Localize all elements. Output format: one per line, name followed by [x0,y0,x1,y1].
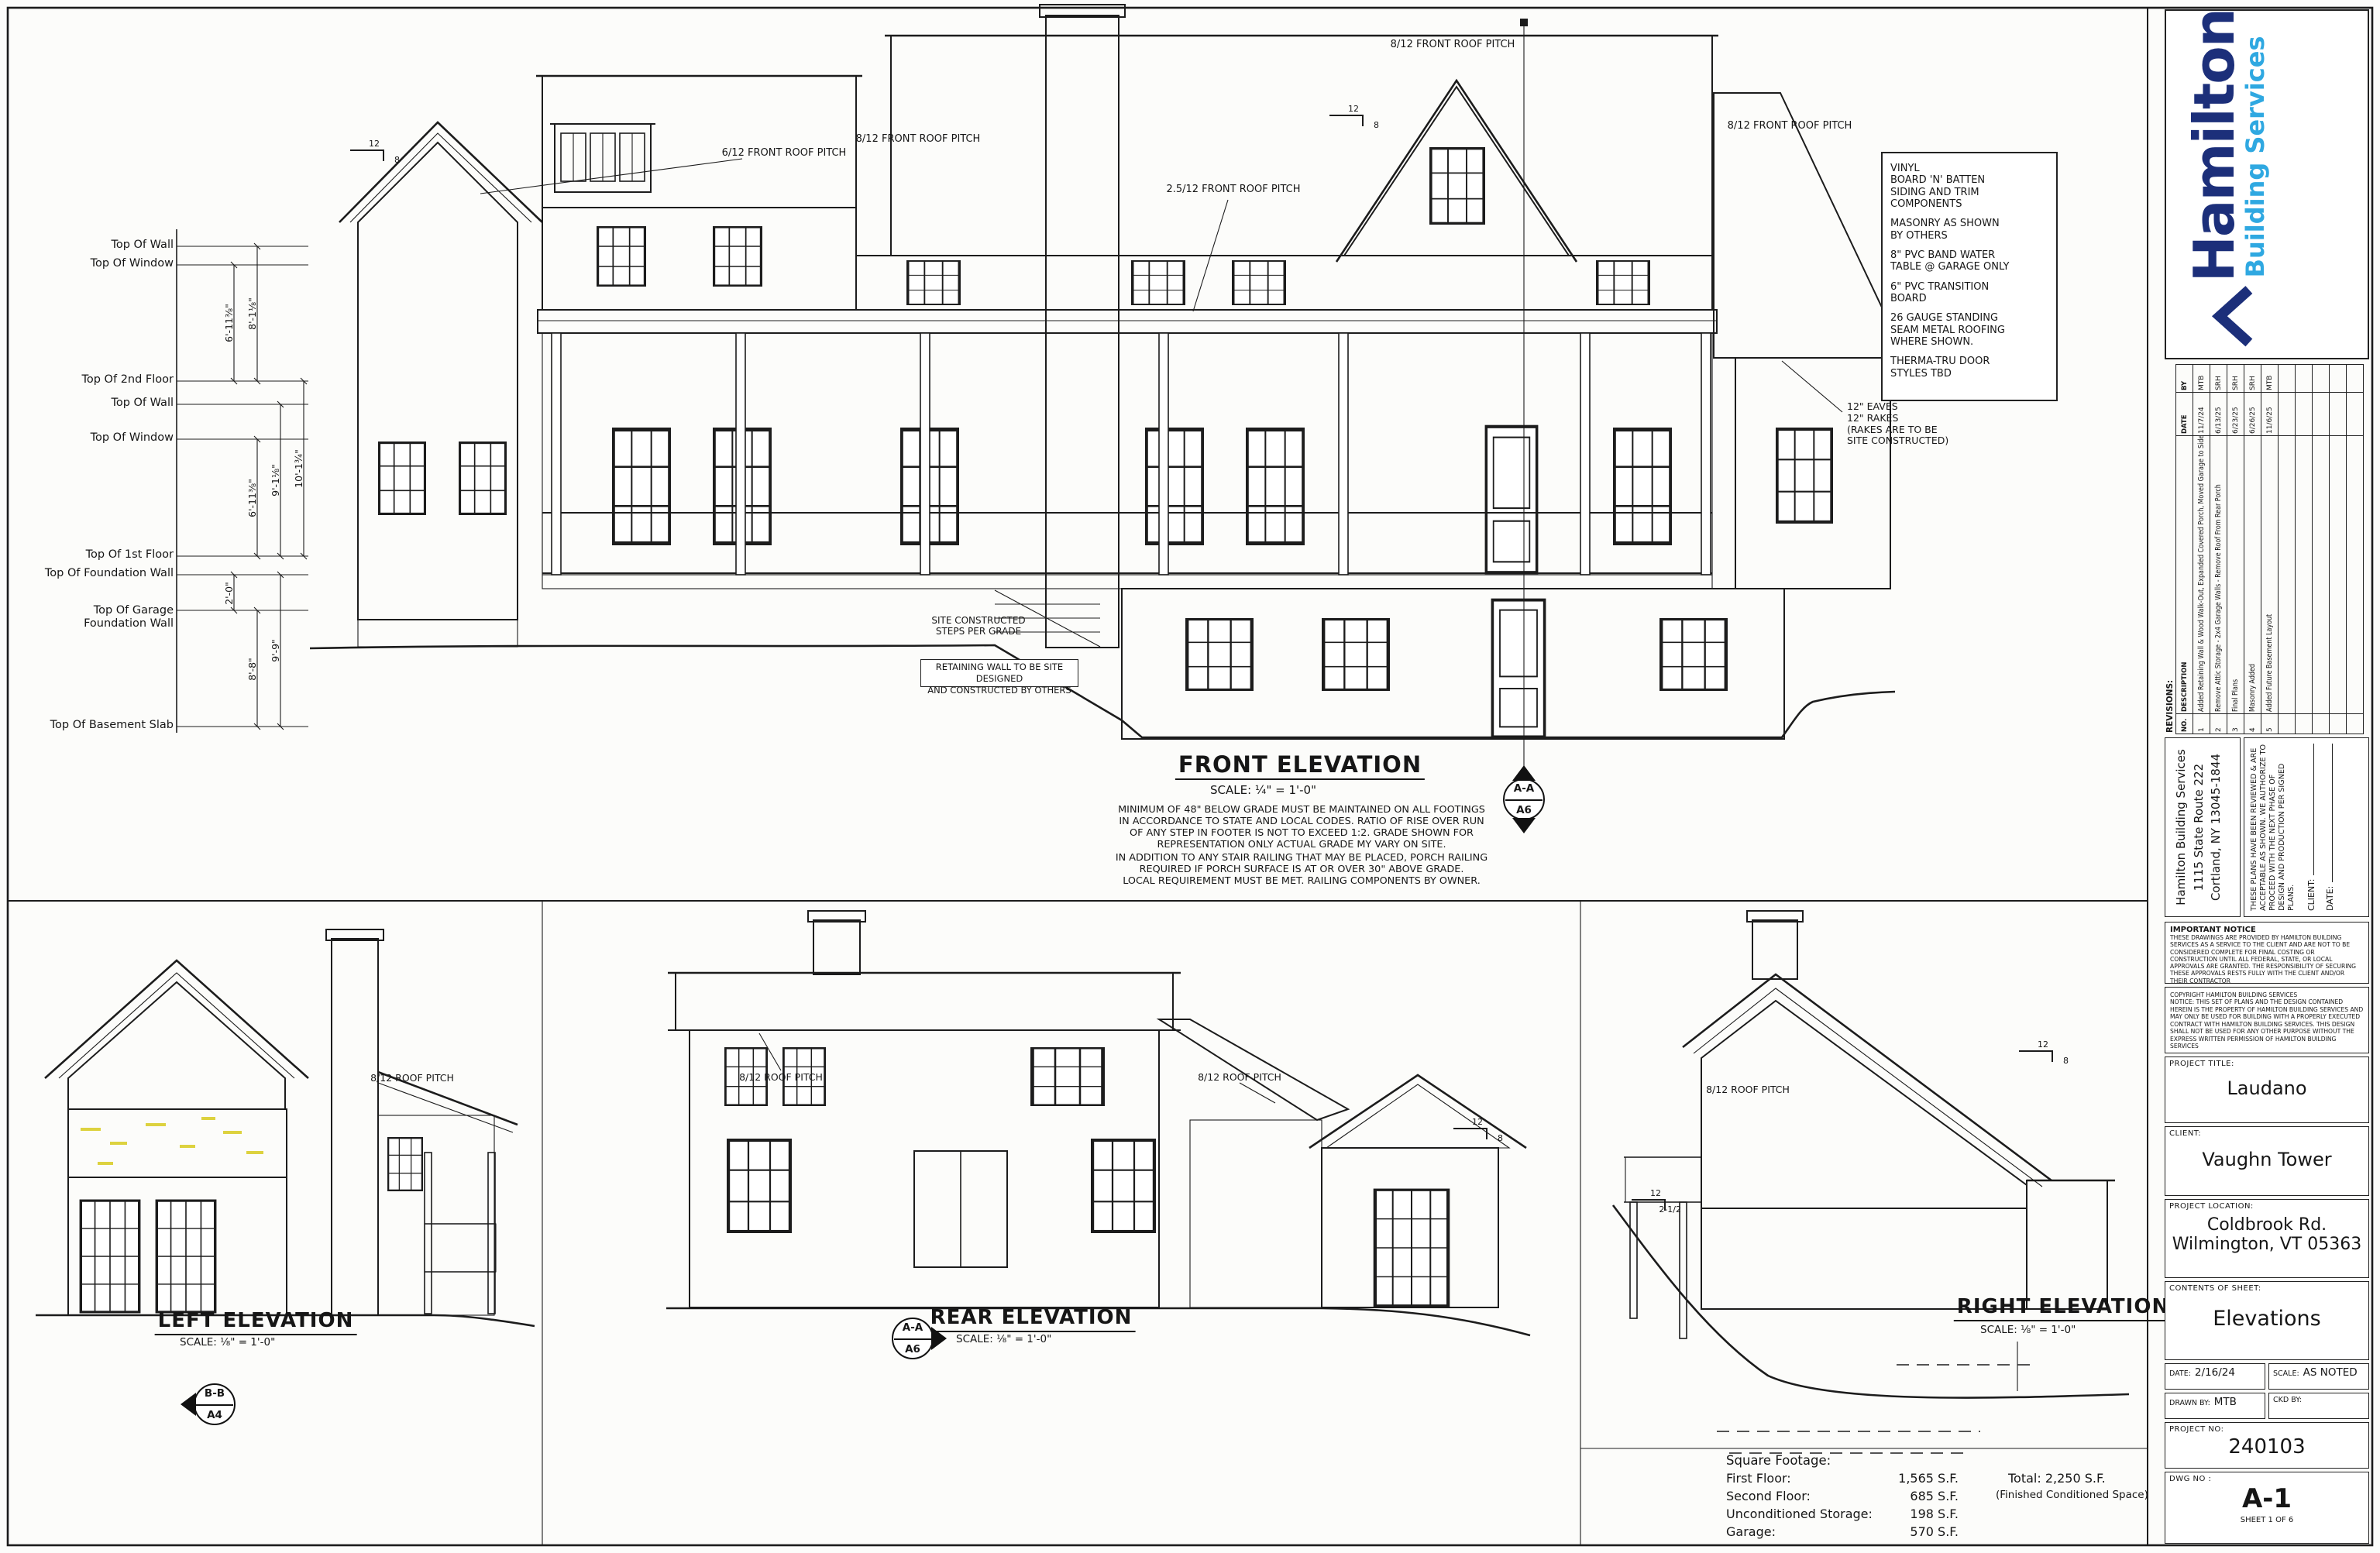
front-footing-note: MINIMUM OF 48" BELOW GRADE MUST BE MAINT… [1118,804,1485,850]
project-no-box: PROJECT NO: 240103 [2165,1422,2369,1469]
rev-date: 6/13/25 [2210,393,2227,436]
sqft-total: Total: 2,250 S.F. [2008,1472,2106,1486]
datum-top-of-window-lower: Top Of Window [0,431,174,445]
dim-wall-to-1st-floor: 9'-1⅛" [270,464,281,496]
sqft-row-label: First Floor: [1726,1472,1791,1486]
section-arrow-down-icon [1512,818,1536,833]
section-label: A-A [893,1321,932,1334]
left-elevation-scale: SCALE: ⅛" = 1'-0" [180,1337,275,1349]
datum-top-of-window-upper: Top Of Window [0,257,174,270]
material-note-band: 8" PVC BAND WATER TABLE @ GARAGE ONLY [1890,249,2048,273]
section-divider [894,1338,931,1340]
section-label: B-B [195,1387,234,1400]
rear-pitch-label-1: 8/12 ROOF PITCH [739,1072,823,1084]
project-location-value: Coldbrook Rd. Wilmington, VT 05363 [2169,1215,2365,1254]
important-notice-text: THESE DRAWINGS ARE PROVIDED BY HAMILTON … [2170,934,2364,984]
sqft-row-label: Second Floor: [1726,1489,1811,1504]
date-value: 2/16/24 [2195,1366,2235,1379]
sqft-row-label: Unconditioned Storage: [1726,1507,1873,1522]
project-location-box: PROJECT LOCATION: Coldbrook Rd. Wilmingt… [2165,1199,2369,1278]
material-note-masonry: MASONRY AS SHOWN BY OTHERS [1890,218,2048,242]
drawn-by-field: DRAWN BY: MTB [2165,1393,2265,1419]
revisions-rotated: REVISIONS: NO. DESCRIPTION DATE BY 1 Add… [2165,364,2369,734]
section-divider [196,1404,233,1406]
elevation-drawing-sheet: Top Of Wall Top Of Window Top Of 2nd Flo… [0,0,2380,1553]
approval-block: THESE PLANS HAVE BEEN REVIEWED & ARE ACC… [2244,737,2369,917]
client-value: Vaughn Tower [2169,1149,2365,1170]
rev-desc-text: Remove Attic Storage - 2x4 Garage Walls … [2214,484,2223,712]
pitch-run: 12 [1650,1188,1661,1198]
material-note-transition: 6" PVC TRANSITION BOARD [1890,281,2048,305]
revision-row: 3 Final Plans 6/23/25 SRH [2227,365,2244,734]
rev-by: SRH [2227,365,2244,393]
client-box: CLIENT: Vaughn Tower [2165,1126,2369,1196]
datum-top-of-foundation-wall: Top Of Foundation Wall [0,567,174,580]
dim-foundation-to-slab: 9'-9" [270,639,281,662]
pitch-run: 12 [1472,1117,1483,1127]
right-elevation-title: RIGHT ELEVATION [1954,1295,2172,1321]
rev-desc-text: Final Plans [2231,679,2240,712]
front-railing-note: IN ADDITION TO ANY STAIR RAILING THAT MA… [1116,852,1487,887]
project-title-value: Laudano [2169,1077,2365,1099]
section-label: A-A [1505,782,1543,795]
revision-row: 4 Masonry Added 6/26/25 SRH [2244,365,2261,734]
rear-elevation-title: REAR ELEVATION [927,1306,1136,1332]
project-title-label: PROJECT TITLE: [2169,1060,2365,1068]
date-signature-line [2323,744,2333,882]
front-pitch-label-6-12: 6/12 FRONT ROOF PITCH [722,147,847,159]
datum-top-of-garage-foundation-wall: Top Of Garage Foundation Wall [0,604,174,630]
dim-2nd-floor-to-1st-floor: 10'-1¾" [293,449,304,488]
dwg-no-label: DWG NO : [2169,1475,2365,1483]
steps-note: SITE CONSTRUCTED STEPS PER GRADE [931,615,1025,637]
sqft-row-label: Garage: [1726,1525,1776,1540]
eaves-rakes-note: 12" EAVES 12" RAKES (RAKES ARE TO BE SIT… [1847,401,1948,447]
section-arrow-left-icon [181,1393,196,1416]
sqft-row-value: 198 S.F. [1866,1507,1959,1522]
material-note-door: THERMA-TRU DOOR STYLES TBD [1890,356,2048,380]
datum-top-of-basement-slab: Top Of Basement Slab [0,719,174,732]
section-arrow-right-icon [931,1327,947,1350]
revisions-header-row: NO. DESCRIPTION DATE BY [2176,365,2193,734]
rev-no: 4 [2244,714,2261,734]
rev-desc: Added Future Basement Layout [2261,436,2279,714]
rev-no: 2 [2210,714,2227,734]
pitch-run: 12 [369,139,380,149]
sqft-row-value: 570 S.F. [1866,1525,1959,1540]
rev-date: 11/7/24 [2193,393,2210,436]
approval-client-label: CLIENT: [2306,879,2316,911]
logo-name: Hamilton [2188,9,2241,282]
pitch-rise: 8 [1374,120,1379,130]
dim-garage-foundation-height: 8'-8" [246,658,258,681]
contents-value: Elevations [2169,1307,2365,1331]
pitch-rise: 8 [1498,1133,1503,1143]
pitch-mark-front-gable: 12 8 [1329,93,1362,116]
revision-row: 5 Added Future Basement Layout 11/6/25 M… [2261,365,2279,734]
approval-date-label: DATE: [2325,886,2335,911]
material-note-roofing: 26 GAUGE STANDING SEAM METAL ROOFING WHE… [1890,312,2048,348]
logo-rotated: Hamilton Building Services [2165,9,2369,359]
rev-header-desc: DESCRIPTION [2176,436,2193,714]
dwg-no-value: A-1 [2169,1483,2365,1514]
rev-desc: Masonry Added [2244,436,2261,714]
front-elevation-scale: SCALE: ¼" = 1'-0" [1210,784,1316,798]
drawn-by-value: MTB [2214,1396,2237,1408]
section-arrow-up-icon [1512,765,1536,781]
section-marker-front-aa: A-A A6 [1503,778,1545,820]
left-elevation-title: LEFT ELEVATION [155,1309,357,1335]
sheet-ref-label: A4 [195,1409,234,1421]
material-note-siding: VINYL BOARD 'N' BATTEN SIDING AND TRIM C… [1890,163,2048,210]
sqft-row-value: 685 S.F. [1866,1489,1959,1504]
important-notice-title: IMPORTANT NOTICE [2170,926,2364,934]
pitch-mark-right-porch: 12 2-1/2 [1632,1177,1664,1201]
project-no-label: PROJECT NO: [2169,1425,2365,1434]
rev-desc: Final Plans [2227,436,2244,714]
rev-by: MTB [2193,365,2210,393]
checked-by-field: CKD BY: [2268,1393,2369,1419]
copyright-box: COPYRIGHT HAMILTON BUILDING SERVICES NOT… [2165,987,2369,1053]
rev-by: SRH [2244,365,2261,393]
checked-by-label: CKD BY: [2273,1396,2302,1404]
rear-pitch-label-2: 8/12 ROOF PITCH [1198,1072,1281,1084]
firm-address: Hamilton Building Services 1115 State Ro… [2165,737,2241,917]
project-title-box: PROJECT TITLE: Laudano [2165,1057,2369,1123]
front-elevation-title: FRONT ELEVATION [1175,751,1425,780]
scale-label: SCALE: [2273,1369,2299,1378]
client-signature-line [2304,744,2314,875]
rev-no: 3 [2227,714,2244,734]
revision-row: 1 Added Retaining Wall & Wood Walk-Out, … [2193,365,2210,734]
sqft-row-value: 1,565 S.F. [1866,1472,1959,1486]
pitch-rise: 2-1/2 [1659,1204,1681,1215]
dwg-no-box: DWG NO : A-1 SHEET 1 OF 6 [2165,1472,2369,1544]
contents-box: CONTENTS OF SHEET: Elevations [2165,1281,2369,1360]
sheet-count: SHEET 1 OF 6 [2169,1516,2365,1524]
pitch-run: 12 [1348,104,1359,114]
front-pitch-label-right: 8/12 FRONT ROOF PITCH [1728,120,1852,132]
rev-by: SRH [2210,365,2227,393]
section-divider [1505,799,1543,801]
rev-date: 6/23/25 [2227,393,2244,436]
scale-value: AS NOTED [2303,1366,2358,1379]
front-pitch-label-left: 8/12 FRONT ROOF PITCH [856,133,981,145]
rev-date: 11/6/25 [2261,393,2279,436]
datum-top-of-wall-lower: Top Of Wall [0,397,174,410]
right-elevation-scale: SCALE: ⅛" = 1'-0" [1980,1325,2076,1337]
roof-logo-icon [2196,285,2270,349]
revision-row-empty [2330,365,2347,734]
rev-header-date: DATE [2176,393,2193,436]
rev-no: 5 [2261,714,2279,734]
client-label: CLIENT: [2169,1129,2365,1138]
right-pitch-label: 8/12 ROOF PITCH [1706,1084,1790,1096]
pitch-rise: 8 [2063,1056,2069,1066]
logo-tagline: Building Services [2241,9,2270,277]
rev-desc-text: Added Retaining Wall & Wood Walk-Out, Ex… [2197,436,2206,713]
important-notice-box: IMPORTANT NOTICE THESE DRAWINGS ARE PROV… [2165,922,2369,984]
revisions-table: NO. DESCRIPTION DATE BY 1 Added Retainin… [2175,364,2364,734]
dim-window-to-2nd-floor: 6'-11⅜" [223,304,235,342]
revision-row-empty [2347,365,2364,734]
front-pitch-label-top: 8/12 FRONT ROOF PITCH [1391,39,1515,50]
datum-top-of-2nd-floor: Top Of 2nd Floor [0,373,174,387]
section-marker-bb: B-B A4 [194,1383,236,1425]
rear-elevation-scale: SCALE: ⅛" = 1'-0" [956,1334,1051,1346]
sqft-total-note: (Finished Conditioned Space) [1996,1489,2148,1502]
rev-header-no: NO. [2176,714,2193,734]
rev-by: MTB [2261,365,2279,393]
sheet-ref-label: A6 [1505,804,1543,816]
revision-row: 2 Remove Attic Storage - 2x4 Garage Wall… [2210,365,2227,734]
datum-top-of-wall-upper: Top Of Wall [0,239,174,252]
pitch-run: 12 [2038,1039,2048,1050]
approval-text: THESE PLANS HAVE BEEN REVIEWED & ARE ACC… [2250,744,2296,911]
front-pitch-label-2-5-12: 2.5/12 FRONT ROOF PITCH [1166,184,1300,195]
materials-note-box: VINYL BOARD 'N' BATTEN SIDING AND TRIM C… [1881,152,2058,401]
datum-top-of-1st-floor: Top Of 1st Floor [0,548,174,562]
left-pitch-label: 8/12 ROOF PITCH [370,1073,454,1084]
project-no-value: 240103 [2169,1435,2365,1459]
pitch-rise: 8 [394,155,400,165]
rev-no: 1 [2193,714,2210,734]
sqft-heading: Square Footage: [1726,1453,1831,1468]
revision-row-empty [2296,365,2313,734]
revisions-title: REVISIONS: [2165,364,2175,733]
date-field: DATE: 2/16/24 [2165,1363,2265,1390]
section-marker-rear-aa: A-A A6 [892,1318,934,1359]
rev-desc: Remove Attic Storage - 2x4 Garage Walls … [2210,436,2227,714]
revision-row-empty [2313,365,2330,734]
pitch-mark-rear: 12 8 [1453,1106,1486,1129]
contents-label: CONTENTS OF SHEET: [2169,1284,2365,1293]
rev-header-by: BY [2176,365,2193,393]
dim-foundation-step: 2'-0" [223,582,235,605]
date-label: DATE: [2169,1369,2191,1378]
sheet-ref-label: A6 [893,1343,932,1355]
rev-desc-text: Masonry Added [2248,664,2257,712]
retaining-wall-note-box: RETAINING WALL TO BE SITE DESIGNED AND C… [920,659,1078,687]
rev-desc-text: Added Future Basement Layout [2265,614,2274,712]
revision-row-empty [2279,365,2296,734]
rev-date: 6/26/25 [2244,393,2261,436]
project-location-label: PROJECT LOCATION: [2169,1202,2365,1211]
drawn-by-label: DRAWN BY: [2169,1399,2210,1407]
rev-desc: Added Retaining Wall & Wood Walk-Out, Ex… [2193,436,2210,714]
scale-field: SCALE: AS NOTED [2268,1363,2369,1390]
pitch-mark-front-left-wing: 12 8 [350,128,383,151]
pitch-mark-right-main: 12 8 [2019,1029,2052,1052]
dim-wall-to-2nd-floor: 8'-1⅛" [246,297,258,330]
dim-window-to-1st-floor: 6'-11⅜" [246,479,258,517]
